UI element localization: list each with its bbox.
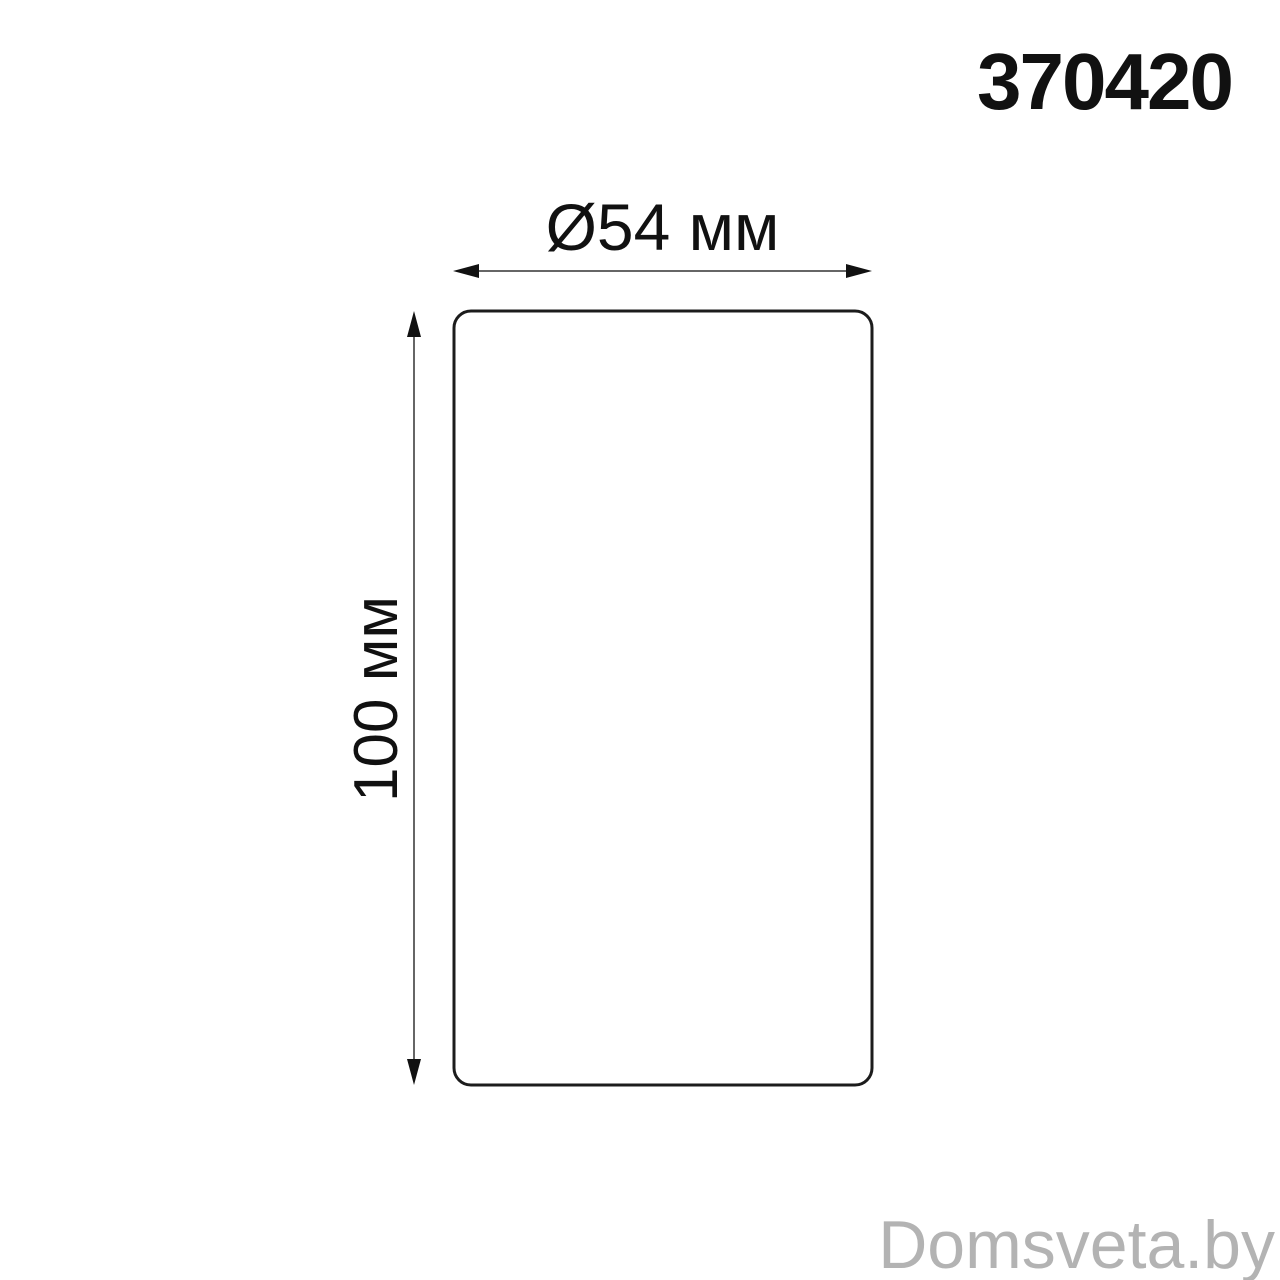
width-arrowhead-left-icon	[453, 264, 479, 278]
watermark: Domsveta.by	[878, 1211, 1275, 1279]
height-dimension-arrow	[407, 311, 421, 1085]
height-arrowhead-bottom-icon	[407, 1059, 421, 1085]
width-dimension-arrow	[453, 264, 872, 278]
height-arrowhead-top-icon	[407, 311, 421, 337]
dimension-diagram	[0, 0, 1280, 1280]
width-arrowhead-right-icon	[846, 264, 872, 278]
product-outline	[454, 311, 872, 1085]
diagram-canvas: 370420 Ø54 мм 100 мм Domsveta.by	[0, 0, 1280, 1280]
